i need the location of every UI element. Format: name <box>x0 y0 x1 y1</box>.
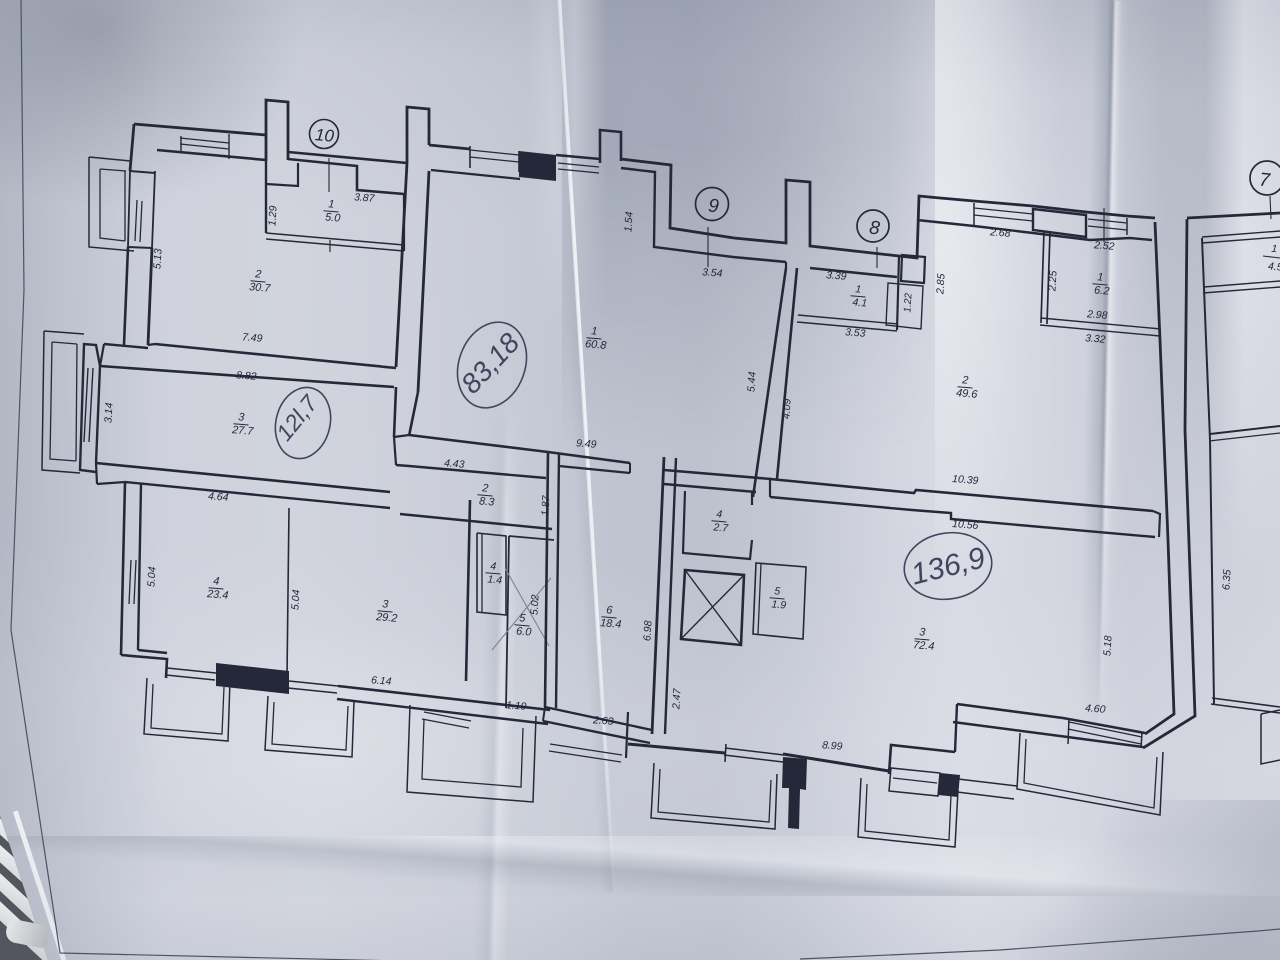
svg-text:1.54: 1.54 <box>622 211 635 232</box>
svg-text:10.56: 10.56 <box>952 518 979 532</box>
svg-text:8.99: 8.99 <box>822 739 843 753</box>
svg-text:4: 4 <box>490 560 497 572</box>
svg-text:2.7: 2.7 <box>712 521 730 534</box>
svg-text:2: 2 <box>961 374 969 387</box>
svg-text:1: 1 <box>855 283 862 295</box>
svg-text:3.54: 3.54 <box>702 266 723 280</box>
svg-text:3.14: 3.14 <box>102 402 115 423</box>
svg-text:6: 6 <box>606 604 614 617</box>
svg-text:2.25: 2.25 <box>1046 270 1059 292</box>
svg-text:3: 3 <box>919 626 927 639</box>
svg-text:3.32: 3.32 <box>1085 332 1106 346</box>
svg-text:3: 3 <box>238 411 246 424</box>
svg-text:30.7: 30.7 <box>249 281 272 295</box>
svg-text:4.09: 4.09 <box>780 398 793 419</box>
svg-text:5.02: 5.02 <box>528 594 541 615</box>
svg-text:10: 10 <box>314 125 335 146</box>
svg-text:1.4: 1.4 <box>487 573 503 586</box>
svg-text:7: 7 <box>1258 170 1272 192</box>
svg-text:1: 1 <box>1271 243 1278 255</box>
svg-text:2.52: 2.52 <box>1093 239 1115 253</box>
svg-text:1: 1 <box>591 325 598 337</box>
svg-text:2.63: 2.63 <box>592 714 614 728</box>
svg-text:12l,7: 12l,7 <box>271 389 323 445</box>
svg-text:83,18: 83,18 <box>455 327 526 400</box>
svg-text:4.43: 4.43 <box>444 457 465 471</box>
svg-text:5: 5 <box>774 585 781 597</box>
svg-text:29.2: 29.2 <box>375 611 398 625</box>
svg-text:1: 1 <box>1097 271 1104 283</box>
svg-text:5: 5 <box>519 612 527 625</box>
svg-text:2.68: 2.68 <box>989 226 1011 240</box>
svg-text:136,9: 136,9 <box>908 541 989 591</box>
svg-text:5.44: 5.44 <box>745 371 758 392</box>
svg-text:7.49: 7.49 <box>242 331 263 345</box>
svg-text:8.3: 8.3 <box>479 495 496 508</box>
svg-text:4.60: 4.60 <box>1085 702 1106 716</box>
svg-text:3.53: 3.53 <box>845 326 866 340</box>
svg-text:2.85: 2.85 <box>934 273 947 295</box>
svg-text:4.1: 4.1 <box>852 296 868 309</box>
svg-text:60.8: 60.8 <box>585 338 608 352</box>
svg-text:3.39: 3.39 <box>826 269 847 283</box>
svg-text:4: 4 <box>716 508 723 520</box>
svg-text:4.64: 4.64 <box>208 490 229 504</box>
svg-text:1: 1 <box>328 198 335 210</box>
svg-text:6.35: 6.35 <box>1220 569 1233 590</box>
svg-text:72.4: 72.4 <box>913 639 935 653</box>
svg-text:6.98: 6.98 <box>641 620 654 641</box>
svg-text:2: 2 <box>481 482 489 495</box>
svg-text:5.04: 5.04 <box>289 589 302 610</box>
svg-text:2.47: 2.47 <box>670 687 683 710</box>
svg-text:6.14: 6.14 <box>371 674 392 688</box>
svg-text:3: 3 <box>382 598 390 611</box>
svg-text:6.2: 6.2 <box>1094 284 1110 297</box>
svg-text:1.87: 1.87 <box>539 494 552 516</box>
svg-text:2: 2 <box>254 268 262 281</box>
svg-text:5.18: 5.18 <box>1101 635 1114 656</box>
svg-text:9.49: 9.49 <box>576 437 597 451</box>
svg-text:5.0: 5.0 <box>325 211 342 224</box>
svg-text:8.82: 8.82 <box>236 369 257 383</box>
svg-text:23.4: 23.4 <box>206 588 229 602</box>
svg-text:3.87: 3.87 <box>354 191 376 205</box>
svg-text:27.7: 27.7 <box>231 424 255 438</box>
svg-text:1.19: 1.19 <box>506 699 527 713</box>
svg-text:4.5: 4.5 <box>1267 260 1280 273</box>
svg-text:2.98: 2.98 <box>1086 308 1108 322</box>
svg-text:1.9: 1.9 <box>771 598 787 611</box>
svg-text:8: 8 <box>868 218 881 240</box>
svg-text:5.04: 5.04 <box>145 566 158 587</box>
svg-text:9: 9 <box>707 196 720 218</box>
svg-text:10.39: 10.39 <box>952 473 979 487</box>
svg-text:5.13: 5.13 <box>151 248 164 269</box>
svg-text:49.6: 49.6 <box>956 387 979 401</box>
svg-text:18.4: 18.4 <box>600 617 622 631</box>
svg-text:1.29: 1.29 <box>266 205 279 226</box>
svg-text:4: 4 <box>213 575 220 587</box>
svg-text:6.0: 6.0 <box>516 625 533 638</box>
svg-text:1.22: 1.22 <box>902 292 914 313</box>
